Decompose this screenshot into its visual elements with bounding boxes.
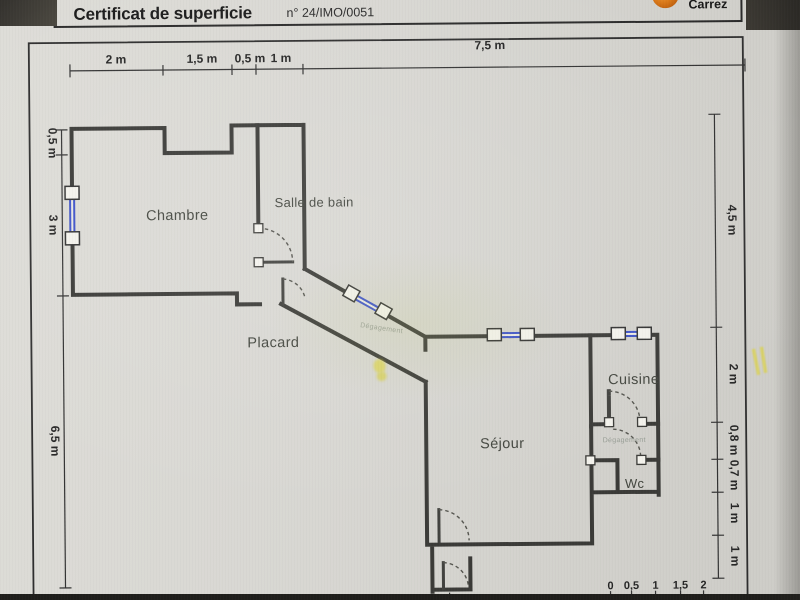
window-icon bbox=[487, 328, 534, 340]
room-label-degagement-corridor: Dégagement bbox=[360, 322, 404, 335]
scale-label-2: 1 bbox=[652, 580, 658, 592]
carrez-logo-icon bbox=[652, 0, 679, 8]
dim-right-1: 2 m bbox=[727, 364, 741, 385]
highlighter-marks bbox=[372, 347, 766, 381]
window-icon bbox=[343, 285, 393, 320]
scale-label-1: 0,5 bbox=[624, 580, 639, 592]
scale-label-0: 0 bbox=[607, 580, 613, 592]
photo-dark-corner-top-left bbox=[0, 0, 57, 26]
dim-top-4: 7,5 m bbox=[474, 38, 505, 52]
room-label-sejour: Séjour bbox=[480, 436, 524, 452]
dim-top-0: 2 m bbox=[105, 52, 126, 66]
door-arc-icon bbox=[283, 279, 305, 298]
windows bbox=[65, 181, 651, 344]
door-arcs bbox=[258, 225, 641, 589]
scale-label-3: 1,5 bbox=[673, 579, 688, 591]
dim-left-2: 6,5 m bbox=[48, 426, 62, 457]
floor-plan-svg: Certificat de superficie n° 24/IMO/0051 … bbox=[0, 0, 800, 600]
room-labels: Chambre Salle de bain Placard Séjour Cui… bbox=[146, 192, 660, 495]
dim-right-0: 4,5 m bbox=[725, 205, 739, 236]
dim-right-5: 1 m bbox=[728, 546, 742, 567]
exterior-walls bbox=[71, 122, 659, 595]
dim-right-4: 1 m bbox=[728, 503, 742, 524]
photo-right-shadow bbox=[774, 0, 800, 600]
window-icon bbox=[611, 327, 651, 339]
room-label-placard: Placard bbox=[247, 335, 299, 351]
window-icon bbox=[65, 186, 80, 245]
room-label-salle-de-bain: Salle de bain bbox=[275, 194, 354, 210]
dim-left-1: 3 m bbox=[46, 215, 60, 236]
brand-label: Carrez bbox=[688, 0, 727, 11]
dim-top-3: 1 m bbox=[270, 51, 291, 65]
dim-top-2: 0,5 m bbox=[234, 51, 265, 65]
room-label-wc: Wc bbox=[625, 476, 645, 491]
door-arc-icon bbox=[439, 509, 469, 540]
interior-walls bbox=[257, 122, 658, 493]
dim-right-2: 0,8 m bbox=[727, 425, 741, 456]
door-leaves bbox=[261, 259, 611, 590]
room-label-chambre: Chambre bbox=[146, 208, 209, 225]
plan-frame bbox=[29, 37, 748, 600]
document-photo: Certificat de superficie n° 24/IMO/0051 … bbox=[0, 0, 800, 600]
dim-top-1: 1,5 m bbox=[186, 52, 217, 66]
document-title: Certificat de superficie bbox=[73, 3, 252, 24]
room-label-cuisine: Cuisine bbox=[608, 372, 659, 388]
door-arc-icon bbox=[443, 562, 468, 587]
dimension-labels: 2 m 1,5 m 0,5 m 1 m 7,5 m 0,5 m 3 m 6,5 … bbox=[45, 36, 743, 597]
photo-dark-bottom-strip bbox=[0, 594, 800, 600]
document-number: n° 24/IMO/0051 bbox=[286, 5, 374, 20]
scale-label-4: 2 bbox=[700, 579, 706, 591]
wall-end-caps bbox=[254, 220, 647, 467]
dim-left-0: 0,5 m bbox=[45, 128, 59, 159]
header-band: Certificat de superficie n° 24/IMO/0051 … bbox=[54, 0, 741, 27]
dim-right-3: 0,7 m bbox=[727, 460, 741, 491]
room-label-degagement-wc: Dégagement bbox=[603, 437, 646, 444]
